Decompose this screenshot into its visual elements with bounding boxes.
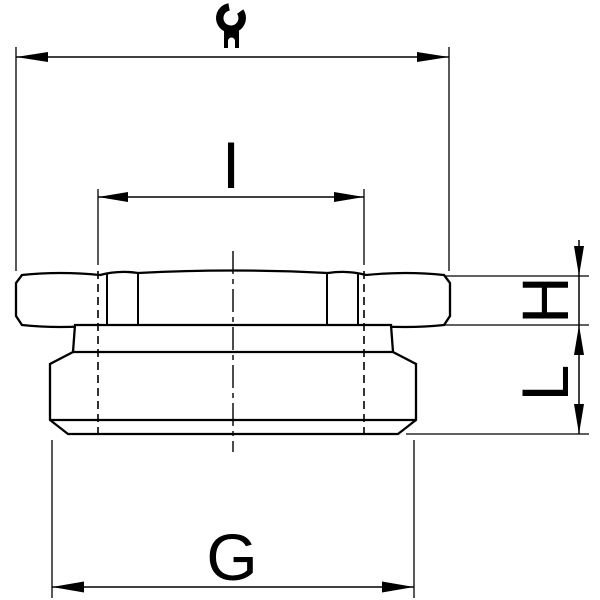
arrowhead-right bbox=[334, 192, 364, 202]
arrowhead-left bbox=[98, 192, 128, 202]
inner-thread-label: I bbox=[222, 128, 240, 202]
arrowhead-down-bottom bbox=[574, 404, 584, 434]
arrowhead-right bbox=[382, 582, 414, 593]
arrowhead-right bbox=[417, 52, 449, 62]
body-length-label: L bbox=[508, 365, 582, 402]
wrench-icon bbox=[216, 3, 246, 48]
wrench-shank bbox=[224, 29, 239, 48]
drawing-svg: I H L bbox=[0, 0, 600, 600]
dimension-hex-height: H bbox=[444, 240, 589, 434]
arrowhead-left bbox=[52, 582, 84, 593]
hex-height-label: H bbox=[508, 276, 582, 324]
technical-drawing-canvas: I H L bbox=[0, 0, 600, 600]
arrowhead-up-middle bbox=[574, 325, 584, 355]
outer-thread-label: G bbox=[206, 520, 257, 594]
arrowhead-left bbox=[16, 52, 48, 62]
arrowhead-down-top bbox=[574, 246, 584, 276]
dimension-inner-thread: I bbox=[98, 128, 364, 265]
dimension-outer-thread: G bbox=[52, 440, 414, 598]
wrench-jaw bbox=[216, 3, 246, 33]
dimension-body-length: L bbox=[406, 365, 589, 434]
